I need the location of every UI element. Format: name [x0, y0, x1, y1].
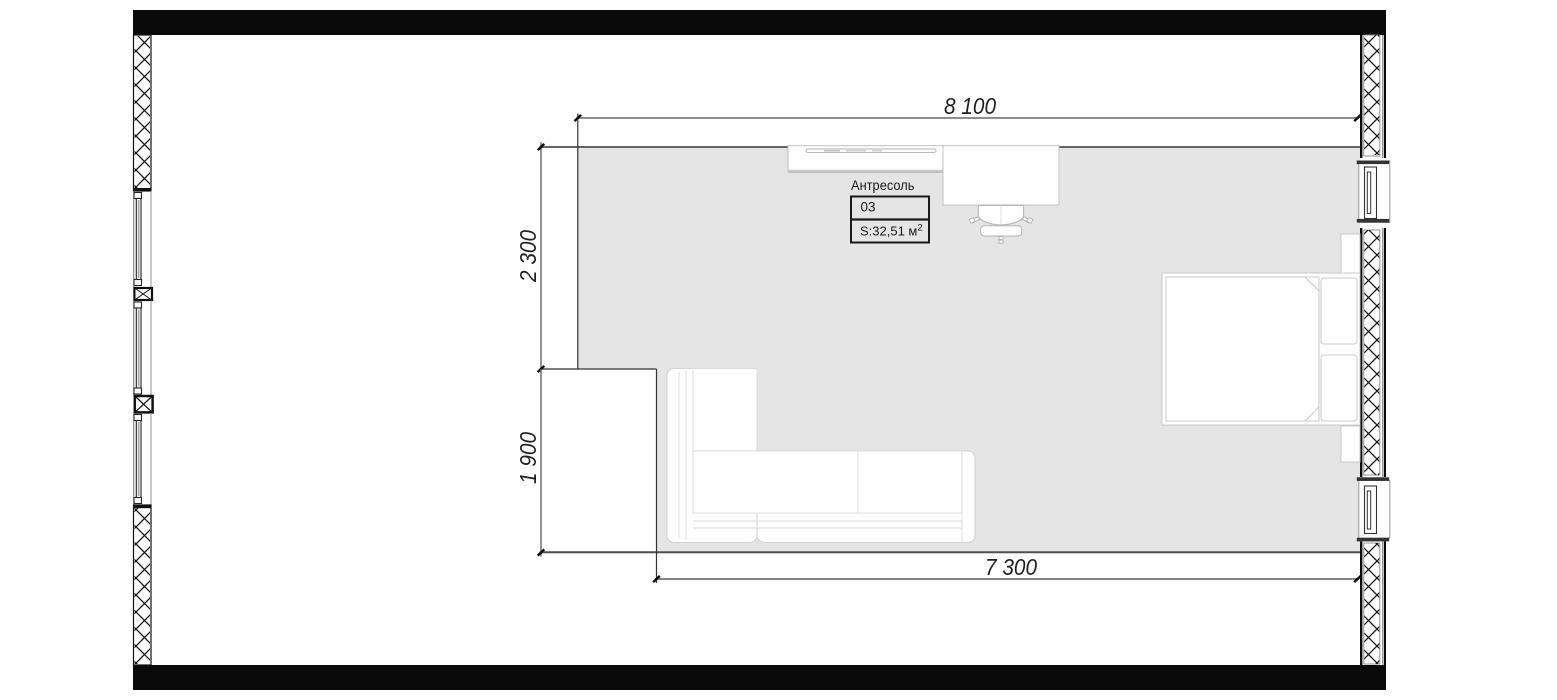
svg-text:1 900: 1 900 [515, 432, 541, 484]
svg-text:8 100: 8 100 [944, 93, 996, 119]
svg-text:Антресоль: Антресоль [851, 177, 915, 193]
svg-text:03: 03 [861, 200, 876, 215]
svg-text:7 300: 7 300 [985, 554, 1037, 580]
svg-text:S:32,51 м2: S:32,51 м2 [860, 223, 923, 239]
svg-text:2 300: 2 300 [515, 230, 541, 283]
